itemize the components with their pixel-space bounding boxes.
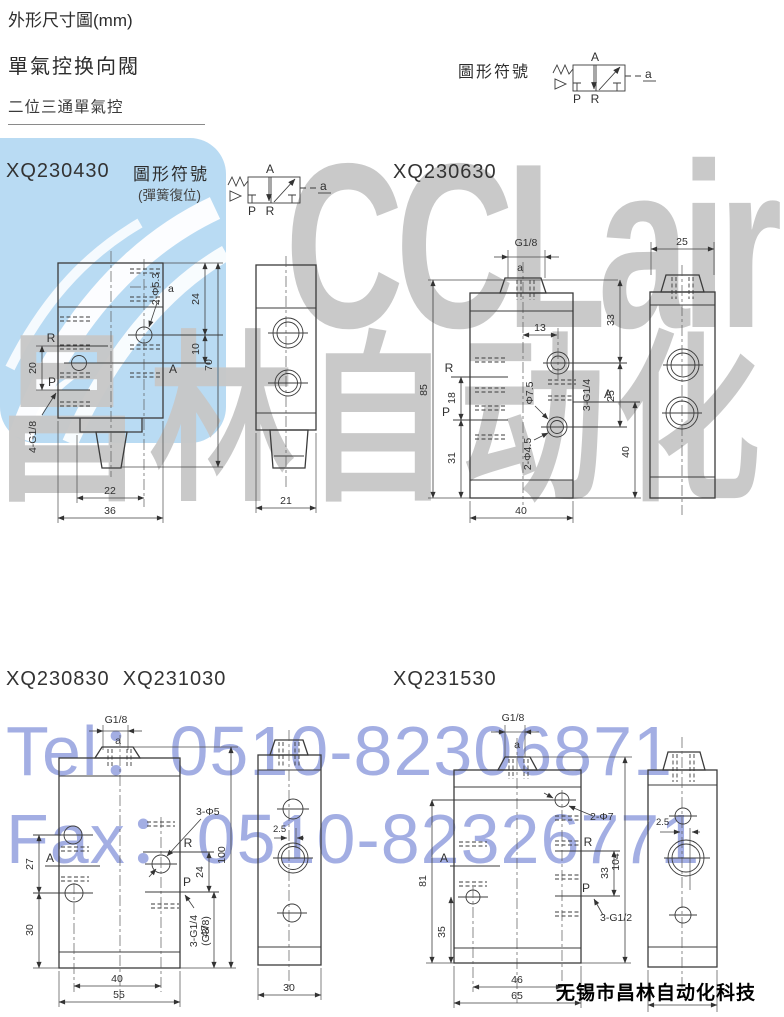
dim-40-bottom: 40 bbox=[515, 505, 527, 517]
drawing-xq230830-front: G1/8 a 27 30 A R P 24 47 bbox=[15, 705, 265, 1017]
symbol-sublabel: (彈簧復位) bbox=[138, 184, 201, 204]
dim-85: 85 bbox=[418, 384, 430, 396]
dim-2-5: 2.5 bbox=[656, 817, 669, 828]
dim-33: 33 bbox=[605, 314, 617, 326]
symbol-port-r: R bbox=[591, 92, 600, 106]
dim-46: 46 bbox=[511, 974, 523, 986]
port-R: R bbox=[584, 835, 593, 849]
dim-g18: G1/8 bbox=[105, 714, 128, 726]
dim-65: 65 bbox=[511, 990, 523, 1002]
symbol-header-label: 圖形符號 bbox=[458, 58, 530, 82]
dim-2-5: 2.5 bbox=[273, 824, 286, 835]
dim-55: 55 bbox=[113, 989, 125, 1001]
dim-hole: 3-Φ5 bbox=[196, 806, 220, 818]
dim-holed: Φ7.5 bbox=[524, 381, 536, 404]
drawing-xq230630-side: 25 bbox=[644, 230, 756, 530]
spring-icon bbox=[553, 65, 573, 74]
dim-40: 40 bbox=[111, 973, 123, 985]
company-name: 无锡市昌林自动化科技 bbox=[556, 978, 756, 1005]
dim-thread: 3-G1/4 bbox=[581, 379, 593, 411]
dim-18: 18 bbox=[446, 392, 458, 404]
symbol-label: 圖形符號 bbox=[133, 160, 209, 185]
drawing-xq231530-side: 2.5 bbox=[642, 725, 767, 1017]
model-label-xq230430: XQ230430 bbox=[6, 160, 110, 183]
port-A: A bbox=[46, 851, 54, 865]
label-a: a bbox=[168, 283, 174, 295]
drawing-xq230430-side: 21 bbox=[248, 250, 358, 540]
dim-g18: G1/8 bbox=[515, 237, 538, 249]
symbol-port-r: R bbox=[266, 204, 275, 218]
dim-35: 35 bbox=[436, 926, 448, 938]
spring-icon bbox=[228, 177, 248, 186]
port-R: R bbox=[184, 836, 193, 850]
page-title: 外形尺寸圖(mm) bbox=[8, 6, 133, 31]
pilot-triangle-icon bbox=[230, 191, 241, 201]
port-A: A bbox=[440, 851, 448, 865]
dim-hole: 2-Φ5.3 bbox=[150, 273, 162, 305]
valve-symbol-xq230430: A P R a bbox=[225, 160, 370, 230]
page-subtitle: 單氣控换向閥 bbox=[8, 50, 140, 79]
dim-31: 31 bbox=[446, 452, 458, 464]
dim-hole2: 2-Φ4.5 bbox=[522, 438, 534, 470]
datasheet-page: CCLair 昌林自动化 Tel：0510-82306871 Fax：0510-… bbox=[0, 0, 784, 1017]
port-P: P bbox=[183, 875, 191, 889]
dim-40-right: 40 bbox=[620, 446, 632, 458]
dim-thread: 4-G1/8 bbox=[27, 421, 39, 453]
drawing-xq230430-front: a 24 10 70 R P 20 A 2-Φ5.3 4-G1/8 22 36 bbox=[20, 245, 240, 535]
section-heading: 二位三通單氣控 bbox=[8, 95, 205, 125]
label-a: a bbox=[517, 262, 523, 274]
dim-21: 21 bbox=[280, 495, 292, 507]
port-R: R bbox=[445, 361, 454, 375]
dim-thread: 3-G1/2 bbox=[600, 912, 632, 924]
dim-100: 100 bbox=[216, 846, 228, 864]
port-A: A bbox=[169, 362, 177, 376]
symbol-port-a-side: a bbox=[645, 67, 652, 81]
dim-30: 30 bbox=[24, 924, 36, 936]
port-P: P bbox=[48, 375, 56, 389]
symbol-port-p: P bbox=[248, 204, 256, 218]
dim-24: 24 bbox=[194, 866, 206, 878]
dim-25: 25 bbox=[605, 390, 617, 402]
pilot-triangle-icon bbox=[555, 79, 566, 89]
dim-25: 25 bbox=[676, 236, 688, 248]
dim-10: 10 bbox=[190, 343, 202, 355]
port-P: P bbox=[442, 405, 450, 419]
drawing-xq230630-front: G1/8 a 85 R P 18 31 13 Φ7.5 2-Φ4.5 bbox=[405, 230, 655, 530]
dim-27: 27 bbox=[24, 858, 36, 870]
port-P: P bbox=[582, 881, 590, 895]
valve-symbol-header: A P R a bbox=[550, 48, 695, 118]
dim-104: 104 bbox=[610, 853, 622, 871]
dim-thread: 3-G1/4 bbox=[188, 915, 200, 947]
dim-22: 22 bbox=[104, 485, 116, 497]
model-label-xq230830: XQ230830 XQ231030 bbox=[6, 668, 226, 691]
dim-36: 36 bbox=[104, 505, 116, 517]
dim-13: 13 bbox=[534, 322, 546, 334]
port-R: R bbox=[47, 331, 56, 345]
drawing-xq231530-front: G1/8 a 2-Φ7 R A P 3-G1/2 33 104 bbox=[400, 705, 665, 1017]
drawing-xq230830-side: 2.5 30 bbox=[252, 722, 367, 1017]
dim-24: 24 bbox=[190, 293, 202, 305]
dim-30: 30 bbox=[283, 982, 295, 994]
model-name-1030: XQ231030 bbox=[123, 668, 227, 690]
dim-81: 81 bbox=[417, 875, 429, 887]
model-label-xq231530: XQ231530 bbox=[393, 668, 497, 691]
model-name-830: XQ230830 bbox=[6, 668, 110, 690]
dim-hole: 2-Φ7 bbox=[590, 811, 614, 823]
symbol-port-a-top: A bbox=[591, 50, 599, 64]
dim-20: 20 bbox=[27, 362, 39, 374]
model-label-xq230630: XQ230630 bbox=[393, 161, 497, 184]
symbol-port-a-side: a bbox=[320, 179, 327, 193]
dim-g18: G1/8 bbox=[502, 712, 525, 724]
symbol-port-p: P bbox=[573, 92, 581, 106]
symbol-port-a-top: A bbox=[266, 162, 274, 176]
dim-70: 70 bbox=[203, 359, 215, 371]
dim-thread2: (G3/8) bbox=[200, 916, 212, 946]
